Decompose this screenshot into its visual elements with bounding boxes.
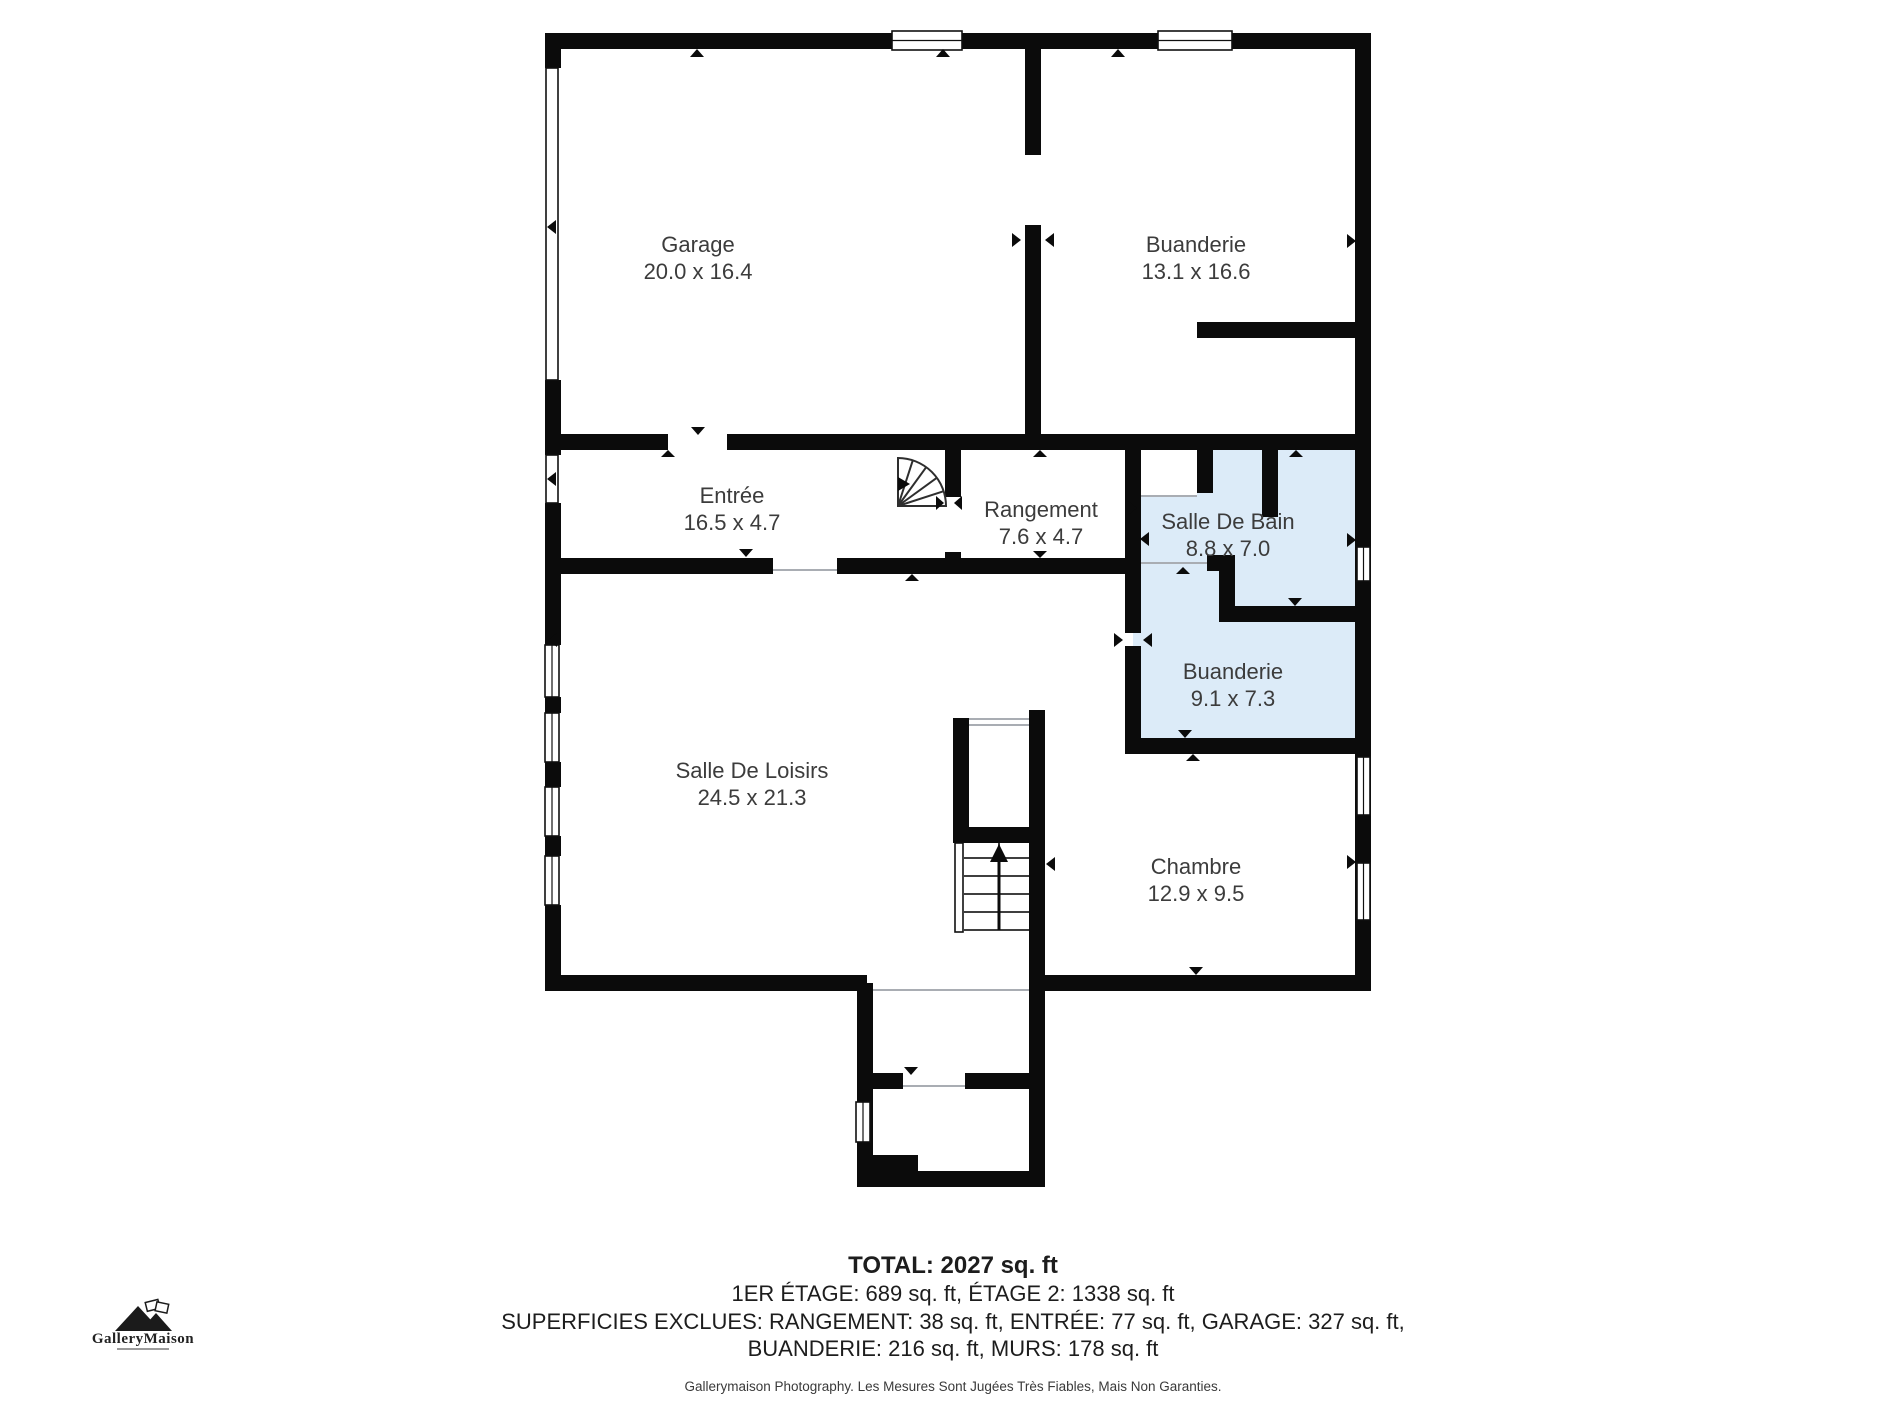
wall-stair-left (953, 718, 969, 840)
wall-left-f (545, 836, 561, 856)
window-top-garage (892, 31, 962, 50)
marker-down-icon (1033, 551, 1047, 558)
room-label-chambre: Chambre (1151, 854, 1241, 879)
marker-up-icon (1186, 754, 1200, 761)
wall-laundry-closet-divider (1197, 322, 1355, 338)
marker-left-icon (954, 496, 962, 510)
walls (545, 33, 1371, 1187)
room-label-salle-de-loisirs: Salle De Loisirs (676, 758, 829, 783)
footer: TOTAL: 2027 sq. ft 1ER ÉTAGE: 689 sq. ft… (501, 1252, 1405, 1394)
wall-vestibule-inner-b (965, 1073, 1029, 1089)
wall-rangement-right-b (1125, 646, 1141, 754)
wall-bath-bottom (1235, 606, 1355, 622)
wall-left-a (545, 33, 561, 68)
wall-right (1355, 33, 1371, 991)
wall-garage-laundry-divider-upper (1025, 49, 1041, 155)
window-salle-1 (545, 645, 559, 697)
stairs-up-arrow-icon (990, 844, 1008, 862)
wall-fan-divider (945, 450, 961, 497)
wall-closet-right (1197, 450, 1213, 493)
window-chambre-1 (1357, 757, 1370, 815)
marker-up-icon (661, 450, 675, 457)
wall-garage-bottom-b (727, 434, 1371, 450)
footer-exclusions-1: SUPERFICIES EXCLUES: RANGEMENT: 38 sq. f… (501, 1309, 1405, 1334)
wall-entree-bottom-b (837, 558, 1141, 574)
wall-rangement-right-a (1125, 450, 1141, 633)
room-label-salle-de-bain: Salle De Bain (1161, 509, 1294, 534)
room-dims-buanderie-haut: 13.1 x 16.6 (1142, 259, 1251, 284)
room-label-entree: Entrée (700, 483, 765, 508)
room-label-buanderie-bas: Buanderie (1183, 659, 1283, 684)
marker-down-icon (1189, 967, 1203, 975)
mountains-icon (115, 1299, 172, 1331)
marker-up-icon (1033, 450, 1047, 457)
room-dims-entree: 16.5 x 4.7 (684, 510, 781, 535)
wall-vestibule-left (857, 983, 873, 1187)
wall-fan-divider-b (945, 552, 961, 562)
marker-left-icon (1046, 857, 1055, 871)
floor-plan: Garage 20.0 x 16.4 Buanderie 13.1 x 16.6… (0, 0, 1900, 1425)
window-bath-right (1357, 547, 1370, 581)
room-label-buanderie-haut: Buanderie (1146, 232, 1246, 257)
closet-floor (1141, 450, 1197, 497)
brand-tagline-line (117, 1348, 169, 1350)
footer-exclusions-2: BUANDERIE: 216 sq. ft, MURS: 178 sq. ft (748, 1336, 1159, 1361)
window-salle-4 (545, 856, 559, 905)
room-dims-rangement: 7.6 x 4.7 (999, 524, 1083, 549)
wall-stair-mid (953, 827, 1029, 843)
marker-down-icon (904, 1067, 918, 1075)
marker-up-icon (690, 49, 704, 57)
room-dims-chambre: 12.9 x 9.5 (1148, 881, 1245, 906)
wall-garage-bottom-a (545, 434, 668, 450)
window-top-laundry (1158, 31, 1232, 50)
window-salle-3 (545, 787, 559, 836)
main-stairs (955, 843, 1029, 932)
window-vestibule (856, 1102, 870, 1142)
wall-laundry2-bottom (1125, 738, 1371, 754)
brand-name: GalleryMaison (92, 1331, 194, 1347)
wall-vestibule-inner-a (873, 1073, 903, 1089)
room-dims-garage: 20.0 x 16.4 (644, 259, 753, 284)
wall-chambre-bottom (1029, 975, 1371, 991)
marker-right-icon (1114, 633, 1123, 647)
wall-vestibule-bottom (857, 1171, 1045, 1187)
wall-bath-vertical2 (1219, 563, 1235, 622)
marker-left-icon (1045, 233, 1054, 247)
wall-entree-bottom-a (545, 558, 773, 574)
room-dims-salle-de-loisirs: 24.5 x 21.3 (698, 785, 807, 810)
marker-right-icon (1347, 234, 1356, 248)
marker-down-icon (691, 427, 705, 435)
floor-plan-page: Garage 20.0 x 16.4 Buanderie 13.1 x 16.6… (0, 0, 1900, 1425)
wall-stair-right (1029, 710, 1045, 1187)
footer-disclaimer: Gallerymaison Photography. Les Mesures S… (684, 1379, 1221, 1394)
brand-logo: GalleryMaison (92, 1299, 194, 1350)
wall-garage-laundry-divider-lower (1025, 225, 1041, 450)
wall-left-d (545, 697, 561, 713)
footer-total: TOTAL: 2027 sq. ft (848, 1252, 1058, 1279)
window-salle-2 (545, 713, 559, 762)
wall-vestibule-step (873, 1155, 918, 1171)
window-chambre-2 (1357, 863, 1370, 920)
room-dims-buanderie-bas: 9.1 x 7.3 (1191, 686, 1275, 711)
footer-etages: 1ER ÉTAGE: 689 sq. ft, ÉTAGE 2: 1338 sq.… (731, 1281, 1174, 1306)
marker-right-icon (936, 496, 944, 510)
room-label-garage: Garage (661, 232, 734, 257)
room-dims-salle-de-bain: 8.8 x 7.0 (1186, 536, 1270, 561)
stairs-arrow-stem (998, 862, 1001, 930)
wall-bath-vertical (1262, 450, 1278, 517)
marker-up-icon (1111, 49, 1125, 57)
wall-salle-bottom (545, 975, 867, 991)
marker-right-icon (1012, 233, 1021, 247)
marker-up-icon (905, 574, 919, 581)
marker-right-icon (1347, 855, 1356, 869)
wall-left-e (545, 762, 561, 787)
room-label-rangement: Rangement (984, 497, 1098, 522)
marker-down-icon (739, 549, 753, 557)
